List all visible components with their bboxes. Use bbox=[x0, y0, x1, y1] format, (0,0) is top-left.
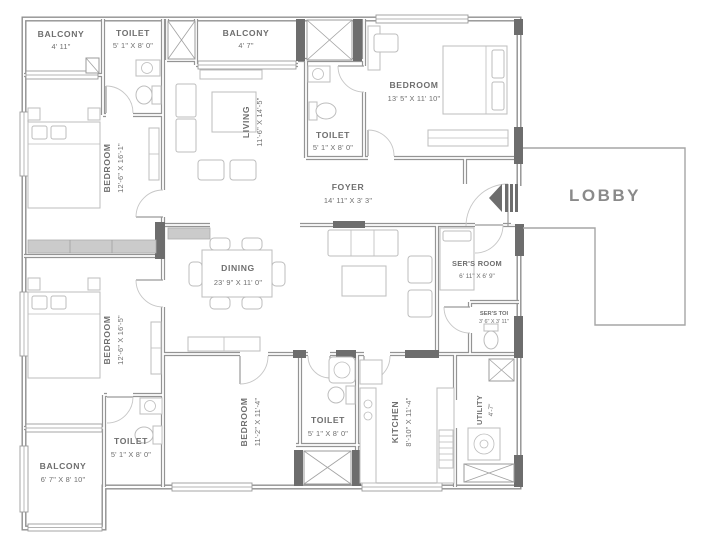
shaft bbox=[168, 21, 195, 59]
coffee-table bbox=[342, 266, 386, 296]
room-label-bedroom-left-upper: BEDROOM 12'-6" X 16'-1" bbox=[102, 143, 125, 193]
door-swing bbox=[308, 356, 330, 378]
window bbox=[362, 483, 442, 491]
svg-text:LOBBY: LOBBY bbox=[569, 186, 641, 205]
svg-text:DINING: DINING bbox=[221, 263, 255, 273]
floor-drain bbox=[86, 58, 99, 73]
svg-text:23' 9" X 11' 0": 23' 9" X 11' 0" bbox=[214, 278, 263, 287]
svg-text:4'-7": 4'-7" bbox=[488, 404, 495, 417]
door-swing bbox=[338, 66, 364, 92]
door-swing bbox=[107, 397, 133, 423]
svg-text:4' 7": 4' 7" bbox=[238, 41, 253, 50]
sofa bbox=[176, 84, 196, 152]
room-label-bedroom-left-lower: BEDROOM 12'-6" X 16'-5" bbox=[102, 315, 125, 365]
svg-text:TOILET: TOILET bbox=[116, 28, 150, 38]
room-label-balcony-top-left: BALCONY 4' 11" bbox=[38, 29, 85, 51]
dining-table bbox=[189, 238, 285, 309]
svg-text:TOILET: TOILET bbox=[316, 130, 350, 140]
shaft bbox=[307, 20, 352, 60]
room-label-bedroom-bottom: BEDROOM 11'-2" X 11'-4" bbox=[239, 397, 262, 446]
lobby-outline bbox=[523, 148, 685, 325]
shaft bbox=[489, 359, 514, 381]
door-swing bbox=[475, 225, 503, 253]
svg-text:5' 1" X 8' 0": 5' 1" X 8' 0" bbox=[308, 429, 348, 438]
svg-text:BALCONY: BALCONY bbox=[40, 461, 87, 471]
window bbox=[28, 524, 102, 531]
armchair bbox=[198, 160, 224, 180]
svg-text:LIVING: LIVING bbox=[241, 106, 251, 138]
window bbox=[26, 424, 102, 432]
svg-text:5' 1" X 8' 0": 5' 1" X 8' 0" bbox=[111, 450, 151, 459]
toilet-fixtures-bottom bbox=[328, 357, 355, 404]
cabinet bbox=[188, 337, 260, 351]
armchair bbox=[230, 160, 256, 180]
svg-text:UTILITY: UTILITY bbox=[475, 395, 484, 425]
svg-text:TOILET: TOILET bbox=[311, 415, 345, 425]
door-swing bbox=[136, 280, 163, 307]
wardrobe bbox=[151, 322, 161, 374]
svg-text:12'-6" X 16'-5": 12'-6" X 16'-5" bbox=[116, 315, 125, 365]
wardrobe bbox=[149, 128, 159, 180]
armchair bbox=[374, 34, 398, 52]
svg-text:KITCHEN: KITCHEN bbox=[390, 401, 400, 443]
window bbox=[172, 483, 252, 491]
svg-text:5' 1" X 8' 0": 5' 1" X 8' 0" bbox=[113, 41, 153, 50]
svg-text:3' 6" X 3' 11": 3' 6" X 3' 11" bbox=[479, 319, 509, 325]
sofa bbox=[328, 230, 398, 256]
room-label-bedroom-top-right: BEDROOM 13' 5" X 11' 10" bbox=[388, 80, 441, 103]
wardrobe bbox=[28, 240, 156, 253]
shaft bbox=[304, 451, 351, 484]
window bbox=[20, 446, 28, 512]
toilet-fixtures-top-left bbox=[136, 60, 161, 104]
room-label-balcony-bottom-left: BALCONY 6' 7" X 8' 10" bbox=[40, 461, 87, 484]
double-bed bbox=[443, 46, 507, 114]
svg-text:SER'S TOI: SER'S TOI bbox=[480, 311, 509, 317]
svg-text:6' 11" X 6' 9": 6' 11" X 6' 9" bbox=[459, 273, 495, 280]
svg-text:14' 11" X 3' 3": 14' 11" X 3' 3" bbox=[324, 196, 373, 205]
svg-text:SER'S ROOM: SER'S ROOM bbox=[452, 259, 502, 268]
sideboard bbox=[168, 228, 210, 239]
door-swing bbox=[136, 190, 163, 217]
armchair bbox=[408, 256, 432, 283]
svg-text:5' 1" X 8' 0": 5' 1" X 8' 0" bbox=[313, 143, 353, 152]
entry-opening bbox=[511, 186, 527, 224]
double-bed bbox=[28, 108, 100, 208]
window bbox=[20, 292, 28, 356]
room-label-toilet-top-left: TOILET 5' 1" X 8' 0" bbox=[113, 28, 153, 50]
dresser bbox=[428, 130, 508, 146]
double-bed bbox=[28, 278, 100, 378]
room-label-toilet-center: TOILET 5' 1" X 8' 0" bbox=[313, 130, 353, 152]
toilet-fixtures-center bbox=[308, 66, 336, 120]
shaft bbox=[464, 464, 514, 482]
svg-text:FOYER: FOYER bbox=[332, 182, 365, 192]
svg-text:11'-6" X 14'-5": 11'-6" X 14'-5" bbox=[255, 97, 264, 146]
svg-text:BEDROOM: BEDROOM bbox=[102, 143, 112, 192]
washing-machine bbox=[468, 428, 500, 460]
room-label-lobby: LOBBY bbox=[569, 186, 641, 205]
room-label-utility: UTILITY 4'-7" bbox=[475, 395, 495, 425]
svg-text:TOILET: TOILET bbox=[114, 436, 148, 446]
room-label-kitchen: KITCHEN 8'-10" X 11'-4" bbox=[390, 397, 413, 446]
door-swing bbox=[240, 356, 268, 384]
svg-text:BEDROOM: BEDROOM bbox=[102, 315, 112, 364]
room-label-servants-toilet: SER'S TOI 3' 6" X 3' 11" bbox=[479, 311, 509, 325]
toilet-fixtures-servants bbox=[484, 324, 498, 349]
svg-text:BEDROOM: BEDROOM bbox=[389, 80, 438, 90]
svg-text:11'-2" X 11'-4": 11'-2" X 11'-4" bbox=[253, 398, 262, 447]
svg-text:4' 11": 4' 11" bbox=[51, 42, 70, 51]
room-label-foyer: FOYER 14' 11" X 3' 3" bbox=[324, 182, 373, 205]
tv-unit bbox=[200, 70, 262, 79]
room-label-balcony-top-center: BALCONY 4' 7" bbox=[223, 28, 270, 50]
door-swing bbox=[444, 307, 470, 333]
svg-text:BALCONY: BALCONY bbox=[223, 28, 270, 38]
svg-text:12'-6" X 16'-1": 12'-6" X 16'-1" bbox=[116, 143, 125, 193]
door-swing bbox=[368, 130, 394, 156]
floor-plan: BALCONY 4' 11" TOILET 5' 1" X 8' 0" BALC… bbox=[0, 0, 702, 543]
floor-plan-page: BALCONY 4' 11" TOILET 5' 1" X 8' 0" BALC… bbox=[0, 0, 702, 543]
svg-text:BEDROOM: BEDROOM bbox=[239, 397, 249, 446]
room-label-toilet-bottom-left: TOILET 5' 1" X 8' 0" bbox=[111, 436, 151, 459]
door-swing bbox=[106, 86, 133, 113]
svg-text:6' 7" X 8' 10": 6' 7" X 8' 10" bbox=[41, 475, 86, 484]
room-label-toilet-bottom: TOILET 5' 1" X 8' 0" bbox=[308, 415, 348, 438]
window bbox=[20, 112, 28, 176]
svg-text:BALCONY: BALCONY bbox=[38, 29, 85, 39]
window bbox=[198, 61, 296, 69]
window bbox=[376, 15, 468, 23]
sink bbox=[439, 430, 453, 468]
svg-text:8'-10" X 11'-4": 8'-10" X 11'-4" bbox=[404, 397, 413, 446]
armchair bbox=[408, 290, 432, 317]
svg-text:13' 5" X 11' 10": 13' 5" X 11' 10" bbox=[388, 94, 441, 103]
